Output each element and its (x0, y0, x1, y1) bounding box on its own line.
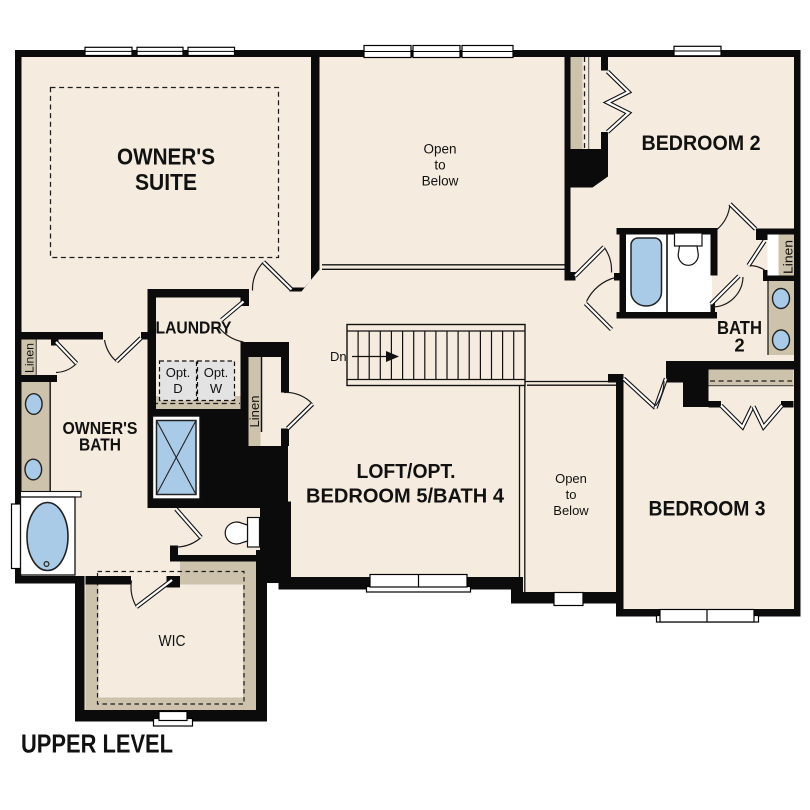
svg-text:Open: Open (555, 471, 587, 486)
svg-text:Below: Below (553, 503, 589, 518)
svg-text:to: to (434, 158, 445, 173)
svg-text:BEDROOM 3: BEDROOM 3 (649, 498, 766, 521)
svg-text:LAUNDRY: LAUNDRY (156, 318, 232, 338)
svg-text:WIC: WIC (159, 633, 186, 650)
svg-text:UPPER LEVEL: UPPER LEVEL (21, 729, 173, 759)
svg-text:Below: Below (422, 174, 459, 189)
svg-text:BATH: BATH (79, 435, 121, 455)
svg-text:to: to (566, 487, 577, 502)
svg-text:LOFT/OPT.: LOFT/OPT. (357, 460, 456, 483)
svg-text:BEDROOM 2: BEDROOM 2 (642, 132, 761, 155)
svg-text:2: 2 (734, 335, 744, 356)
svg-text:Linen: Linen (247, 396, 262, 428)
svg-text:Dn: Dn (330, 349, 347, 364)
svg-text:Opt.: Opt. (166, 365, 191, 380)
svg-text:Open: Open (423, 142, 456, 157)
svg-text:BEDROOM 5/BATH 4: BEDROOM 5/BATH 4 (306, 485, 505, 508)
svg-text:D: D (173, 381, 182, 396)
svg-text:SUITE: SUITE (135, 169, 197, 195)
svg-text:OWNER'S: OWNER'S (117, 144, 215, 170)
svg-text:W: W (210, 381, 223, 396)
svg-text:Linen: Linen (781, 240, 796, 274)
svg-text:Linen: Linen (23, 343, 37, 373)
svg-text:Opt.: Opt. (204, 365, 229, 380)
